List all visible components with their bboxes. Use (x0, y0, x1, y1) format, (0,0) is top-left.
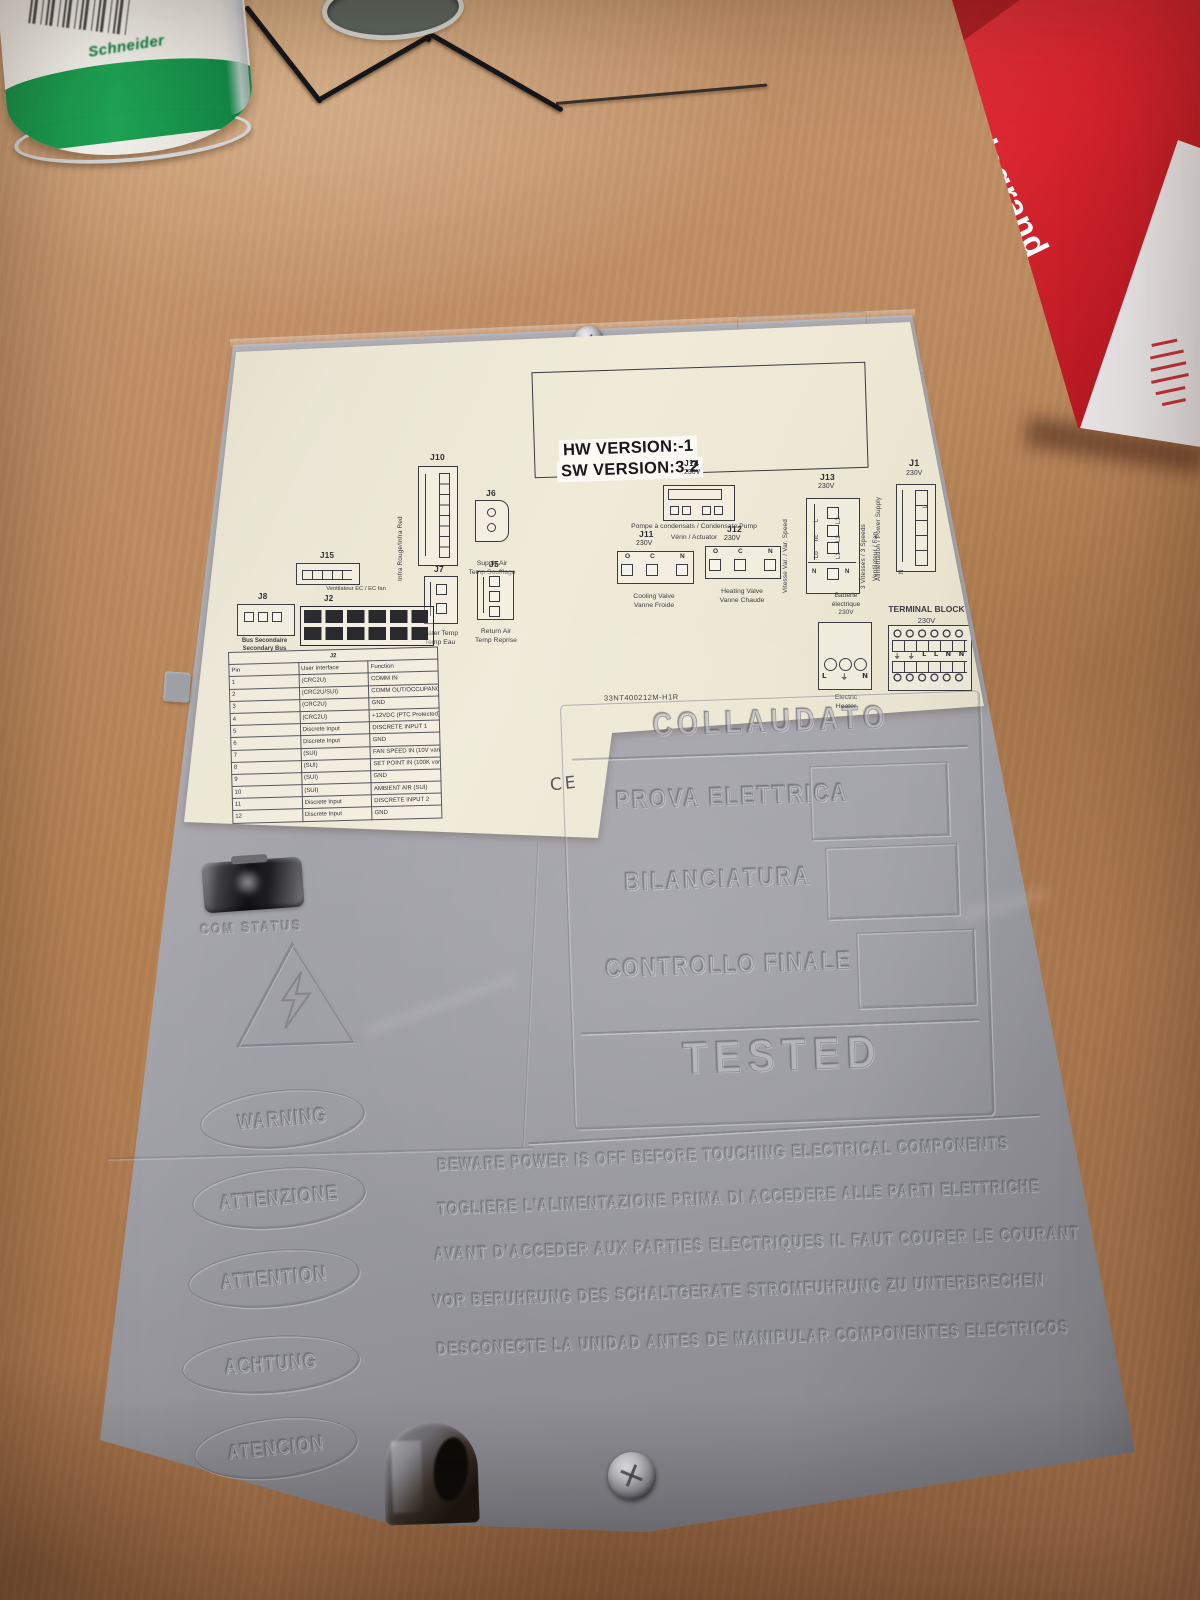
j13-pin-label: L (814, 519, 820, 522)
connector-j13-name: J13 (820, 472, 835, 482)
j11-pin-label: N (680, 553, 685, 560)
j7-pin (436, 584, 447, 595)
oval-label: WARNING (237, 1103, 329, 1135)
j2-pin-table: J2 Pin User Interface Function 1(CRC2U)C… (228, 647, 442, 824)
j11-pin (621, 564, 633, 576)
connector-j10 (418, 466, 458, 566)
j1-pin-label: L (923, 505, 929, 508)
j14-slot (668, 489, 722, 500)
connector-j14-name: J14 (684, 458, 699, 468)
j11-pin (676, 564, 688, 576)
j15-pins (302, 570, 352, 580)
j11-pin-label: C (650, 553, 655, 560)
j13-volt: 230V (818, 483, 834, 490)
oval-label: ATENCION (227, 1431, 326, 1465)
j14-volt: 230V (684, 469, 700, 476)
j13-pin-label: L2 (836, 535, 842, 542)
background-can-rim (320, 0, 465, 44)
j2-cells (304, 627, 428, 640)
wire-rack-segment (244, 5, 323, 104)
j13-divider (808, 562, 856, 563)
j11-pin (646, 564, 658, 576)
oval-label: ATTENZIONE (219, 1181, 340, 1215)
j13-pin-label: L1 (836, 552, 842, 559)
terminal-block-row (892, 628, 967, 639)
high-voltage-triangle-icon (226, 936, 362, 1053)
j8-pin (244, 612, 254, 622)
j14-pin (670, 506, 679, 515)
connector-j10-name: J10 (430, 452, 445, 462)
j13-pin (827, 568, 839, 580)
j12-pin-label: C (738, 548, 743, 555)
j11-pin-label: O (625, 553, 630, 560)
j7-pin (436, 603, 447, 614)
controllo-finale-box (856, 929, 977, 1009)
controller-unit: HW VERSION:-1 SW VERSION:3.2 J10 Infra R… (80, 300, 1155, 1545)
j8-pin (272, 612, 282, 622)
j12-pin-label: O (713, 548, 718, 555)
j12-volt: 230V (724, 535, 740, 542)
connector-j12-name: J12 (727, 524, 742, 534)
schneider-logo: Schneider (87, 32, 166, 61)
connector-j5-name: J5 (489, 559, 499, 569)
j12-pin (709, 559, 721, 571)
j13-pin-label: N (812, 569, 816, 575)
j14-caption1: Pompe à condensats / Condensate Pump (604, 523, 784, 532)
j10-pins (439, 473, 450, 558)
j6-pin (487, 523, 496, 532)
legrand-wordmark: legrand (965, 133, 1055, 264)
j12-pin (764, 559, 776, 571)
j15-caption: Ventilateur EC / EC fan (276, 586, 436, 594)
notch-hole (431, 1436, 472, 1503)
com-status-window (201, 857, 304, 914)
photo-scene: Schneider legrand (0, 0, 1200, 1600)
j13-pin-label: N (845, 569, 849, 575)
legrand-square-icon (961, 112, 989, 140)
connector-j7-name: J7 (434, 564, 444, 574)
oval-label: ACHTUNG (224, 1349, 318, 1379)
connector-j8-name: J8 (258, 592, 268, 601)
j12-caption: Heating Valve Vanne Chaude (702, 588, 782, 606)
terminal-block-labels: ⏚ ⏚ L L N N (890, 650, 968, 660)
notch-wall-light (391, 1440, 423, 1513)
oval-label: ATTENTION (220, 1262, 328, 1295)
j13-pin-label: nc (814, 535, 820, 541)
connector-j15-name: J15 (320, 551, 334, 560)
j13-right-label1: 3 Vitesses / 3 Speeds (860, 524, 867, 589)
box-fold-shade (950, 0, 1020, 45)
barcode (28, 0, 137, 35)
bottom-screw (608, 1452, 656, 1500)
j6-pin (487, 508, 496, 517)
window-tab (231, 854, 267, 864)
j12-pin-label: N (768, 548, 773, 555)
window-glint (232, 867, 264, 897)
j5-bracket (483, 577, 484, 613)
j5-caption: Return Air Temp Reprise (456, 628, 536, 646)
j11-caption: Cooling Valve Vanne Froide (614, 593, 694, 611)
wire-rack-segment (556, 84, 767, 105)
sw-version: SW VERSION:3.2 (557, 456, 704, 482)
j13-pin-label: L3 (836, 517, 842, 524)
j5-pin (489, 606, 500, 617)
tested-text: TESTED (682, 1027, 883, 1084)
j14-pin (714, 506, 723, 515)
heater-pin (824, 658, 837, 671)
j1-side-label: Alimentation / Power Supply (875, 497, 882, 581)
schneider-can: Schneider (0, 0, 257, 164)
test-record-panel: COLLAUDATO PROVA ELETTRICA BILANCIATURA … (560, 690, 995, 1129)
j10-side-label: Infra Rouge/Infra Red (397, 516, 404, 581)
j14-pin (682, 506, 691, 515)
heater-pin (854, 658, 867, 671)
j11-volt: 230V (636, 540, 652, 547)
wire-rack-segment (317, 32, 434, 102)
j1-bracket (902, 490, 903, 562)
j5-pin (489, 591, 500, 602)
j8-pin (258, 612, 268, 622)
j2-cells (304, 610, 428, 623)
j12-pin (734, 559, 746, 571)
j1-pin-label: N (899, 570, 905, 574)
j13-left-label: Vitesse Var. / Var. Speed (782, 519, 789, 593)
cable-notch (382, 1420, 480, 1525)
bilanciatura-box (825, 843, 959, 920)
j13-pin-label: Lo (814, 551, 820, 558)
terminal-block-row (892, 672, 967, 683)
terminal-block-title: TERMINAL BLOCK (874, 604, 979, 615)
j10-bracket (425, 474, 426, 556)
heater-pin-labels: L ⏚ N (822, 672, 868, 682)
legrand-logo: legrand (953, 108, 1056, 264)
j14-pin (702, 506, 711, 515)
j5-pin (489, 576, 500, 587)
j1-pins (915, 490, 928, 566)
heater-pin (839, 658, 852, 671)
connector-j6 (475, 500, 509, 542)
connector-j2-name: J2 (324, 594, 334, 603)
prova-elettrica-box (809, 762, 949, 841)
wire-rack-segment (430, 32, 564, 112)
j1-volt: 230V (906, 470, 922, 477)
connector-j1-name: J1 (909, 458, 920, 468)
connector-j6-name: J6 (486, 488, 496, 498)
connector-j11-name: J11 (639, 529, 654, 539)
